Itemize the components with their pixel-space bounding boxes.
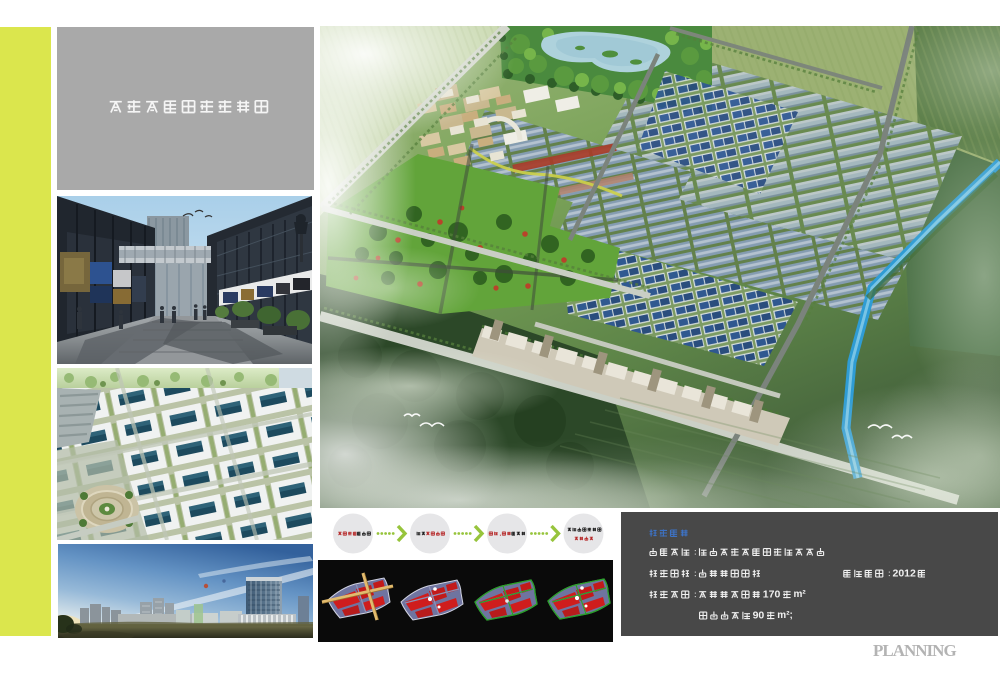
- svg-text:90: 90: [753, 610, 765, 622]
- svg-text:2012: 2012: [893, 568, 917, 580]
- svg-text:170: 170: [763, 589, 781, 601]
- svg-text:m²;: m²;: [777, 610, 793, 621]
- svg-text:m²: m²: [794, 589, 807, 600]
